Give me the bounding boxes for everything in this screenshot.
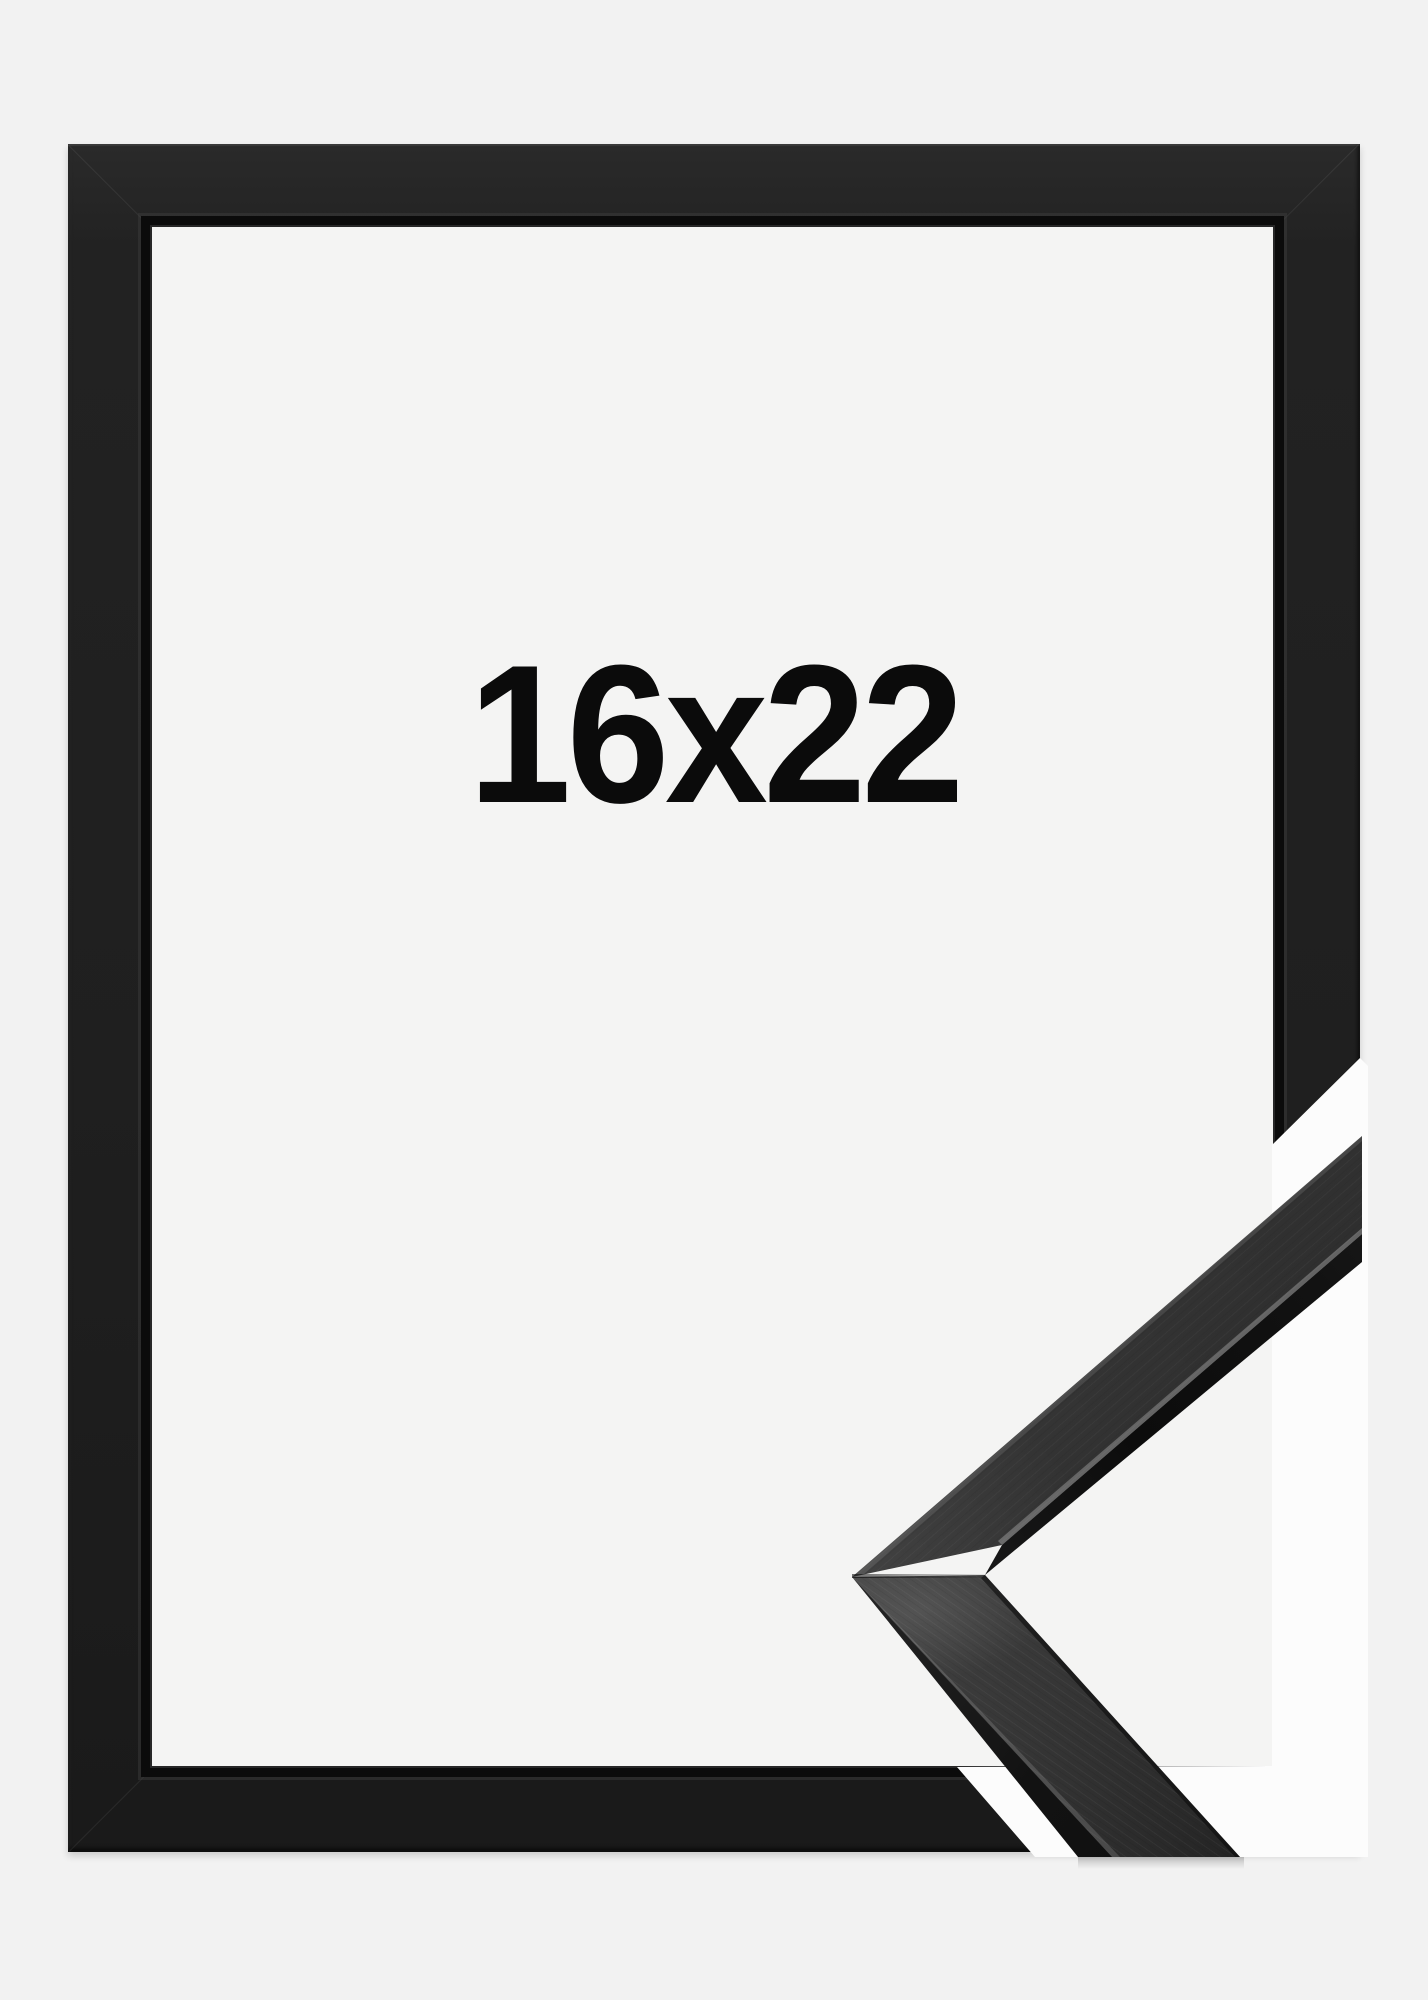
size-label: 16x22 — [43, 636, 1385, 833]
sample-miter-seam — [852, 1574, 986, 1578]
sample-arm-upper-edge-highlight — [850, 1130, 1364, 1580]
moulding-corner-sample — [0, 0, 1428, 2000]
product-image: 16x22 — [0, 0, 1428, 2000]
sample-end-shadow — [1078, 1857, 1244, 1869]
sample-arm-lower — [850, 1575, 1242, 1857]
sample-arm-upper — [850, 1130, 1364, 1580]
